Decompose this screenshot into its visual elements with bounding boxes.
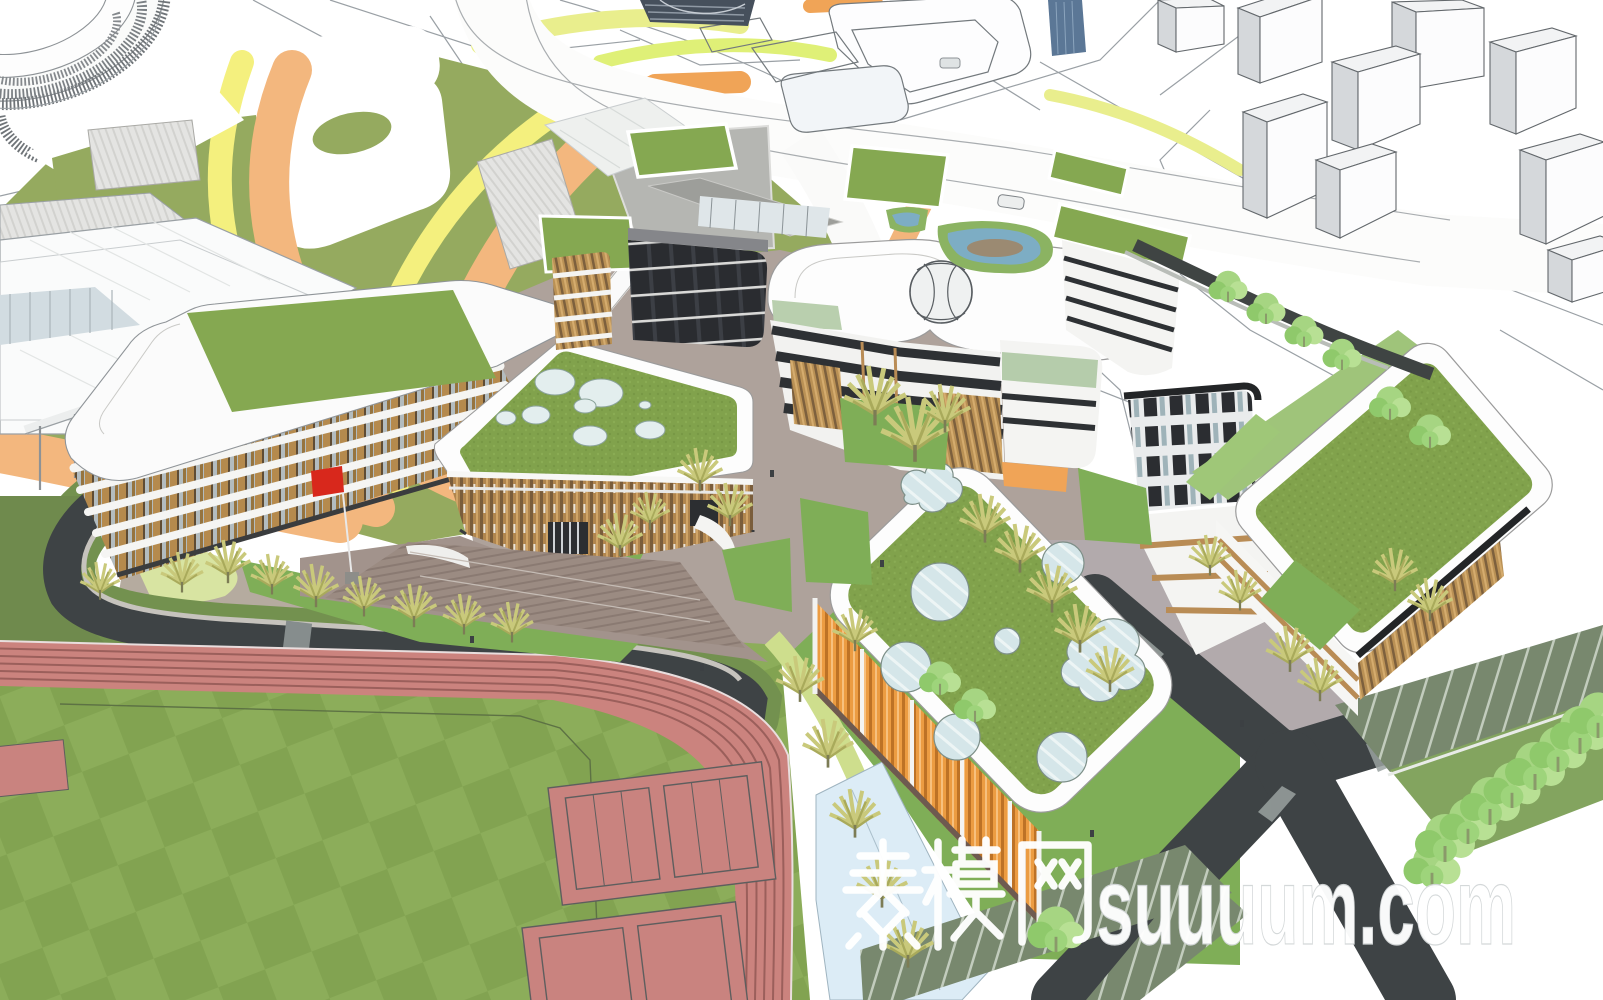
svg-text:suuuum.com: suuuum.com	[1096, 845, 1516, 968]
